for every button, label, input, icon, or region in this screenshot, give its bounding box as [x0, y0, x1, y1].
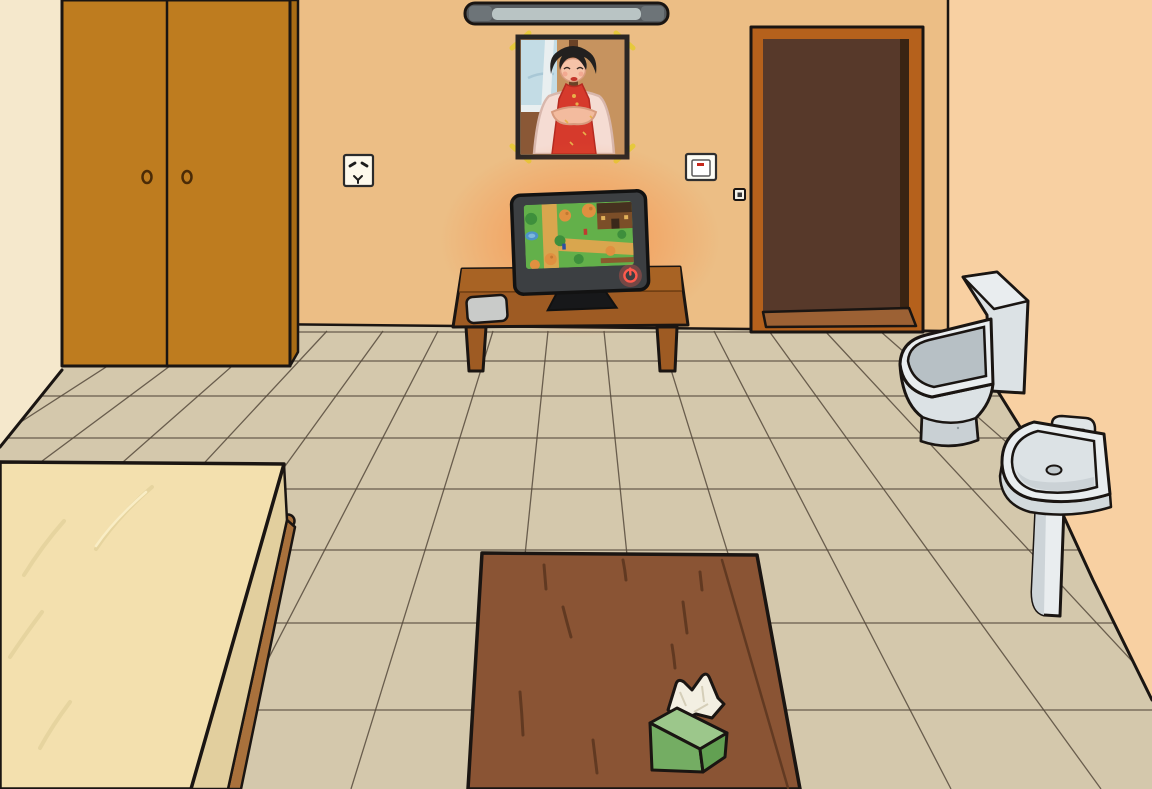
lamp-cap-right: [641, 6, 664, 21]
bed[interactable]: [0, 462, 295, 789]
power-outlet[interactable]: [344, 155, 373, 186]
door-opening[interactable]: [763, 39, 909, 312]
lamp-cap-left: [469, 6, 492, 21]
wardrobe-doors[interactable]: [62, 0, 290, 366]
portrait-painting: [521, 40, 624, 154]
light-switch[interactable]: [686, 154, 716, 180]
wardrobe[interactable]: [62, 0, 298, 366]
tv-screen[interactable]: [524, 201, 634, 270]
sink-drain[interactable]: [1047, 466, 1062, 475]
room-scene: [0, 0, 1152, 789]
switch-red-indicator: [697, 163, 704, 166]
switch-rocker[interactable]: [692, 160, 710, 176]
tv-table-leg-left: [466, 327, 486, 371]
door[interactable]: [751, 27, 923, 332]
tv-table-leg-right: [657, 327, 677, 371]
coffee-table[interactable]: [468, 553, 800, 789]
remote-pad[interactable]: [466, 295, 508, 324]
door-edge-shadow: [900, 39, 909, 312]
coffee-table-top[interactable]: [468, 553, 800, 789]
tv-power-button[interactable]: [621, 266, 640, 285]
portrait[interactable]: [512, 33, 633, 161]
lamp-tube: [492, 8, 641, 20]
doorbell-button[interactable]: [734, 189, 745, 200]
ceiling-lamp[interactable]: [465, 3, 668, 24]
door-threshold: [763, 308, 916, 327]
portrait-crossed-arms: [552, 107, 596, 124]
